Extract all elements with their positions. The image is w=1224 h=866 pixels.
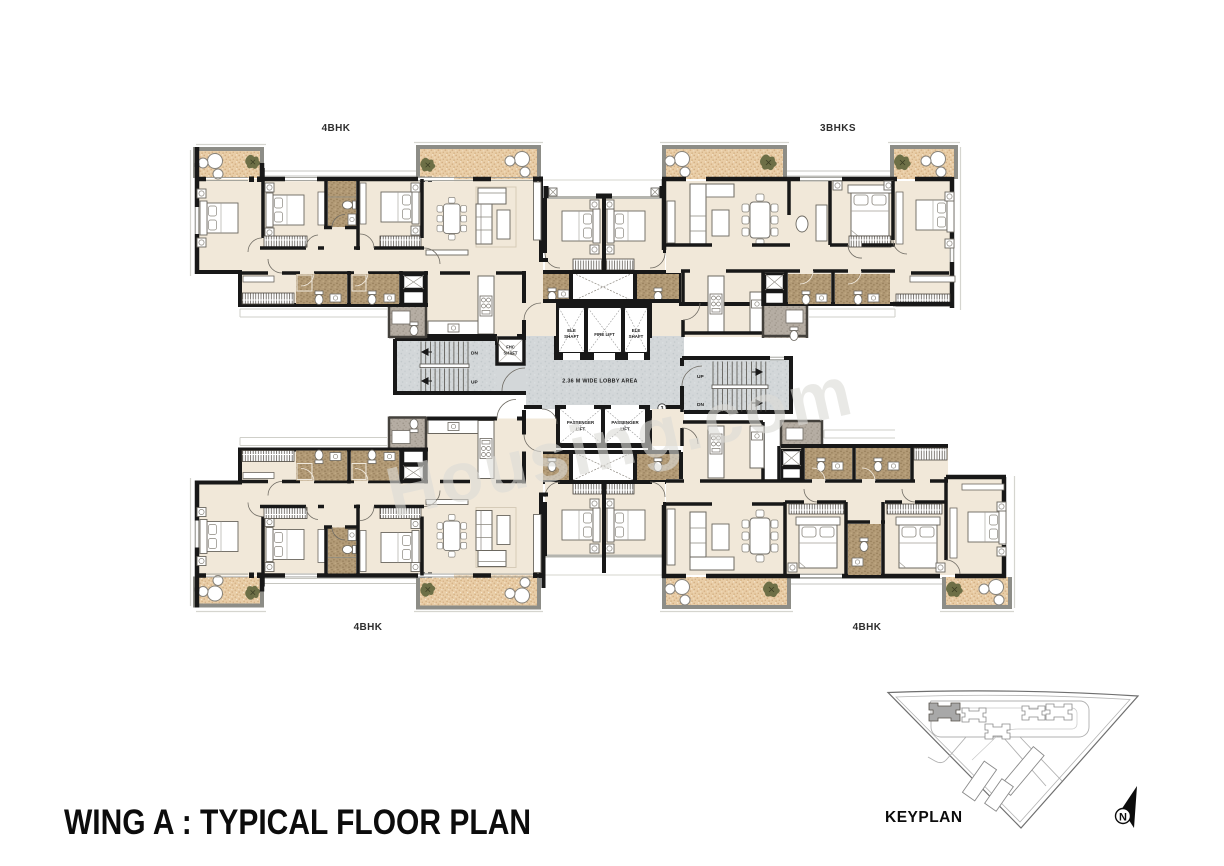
svg-text:DN: DN — [471, 351, 478, 357]
svg-text:N: N — [1119, 812, 1127, 824]
svg-text:3BHKS: 3BHKS — [820, 123, 856, 134]
svg-text:KEYPLAN: KEYPLAN — [885, 809, 963, 826]
svg-text:2.36 M WIDE LOBBY AREA: 2.36 M WIDE LOBBY AREA — [562, 379, 638, 385]
svg-text:FHC: FHC — [506, 345, 515, 350]
svg-text:4BHK: 4BHK — [853, 622, 882, 633]
svg-text:4BHK: 4BHK — [354, 622, 383, 633]
svg-text:UP: UP — [697, 374, 704, 380]
svg-text:ELE: ELE — [567, 328, 576, 333]
svg-text:WING A : TYPICAL FLOOR PLAN: WING A : TYPICAL FLOOR PLAN — [64, 803, 531, 842]
svg-text:FIRE LIFT: FIRE LIFT — [594, 332, 615, 337]
svg-text:SHAFT: SHAFT — [564, 334, 579, 339]
svg-text:SHAFT: SHAFT — [629, 334, 644, 339]
svg-text:ELE: ELE — [632, 328, 641, 333]
svg-text:4BHK: 4BHK — [322, 123, 351, 134]
svg-text:UP: UP — [471, 380, 478, 386]
